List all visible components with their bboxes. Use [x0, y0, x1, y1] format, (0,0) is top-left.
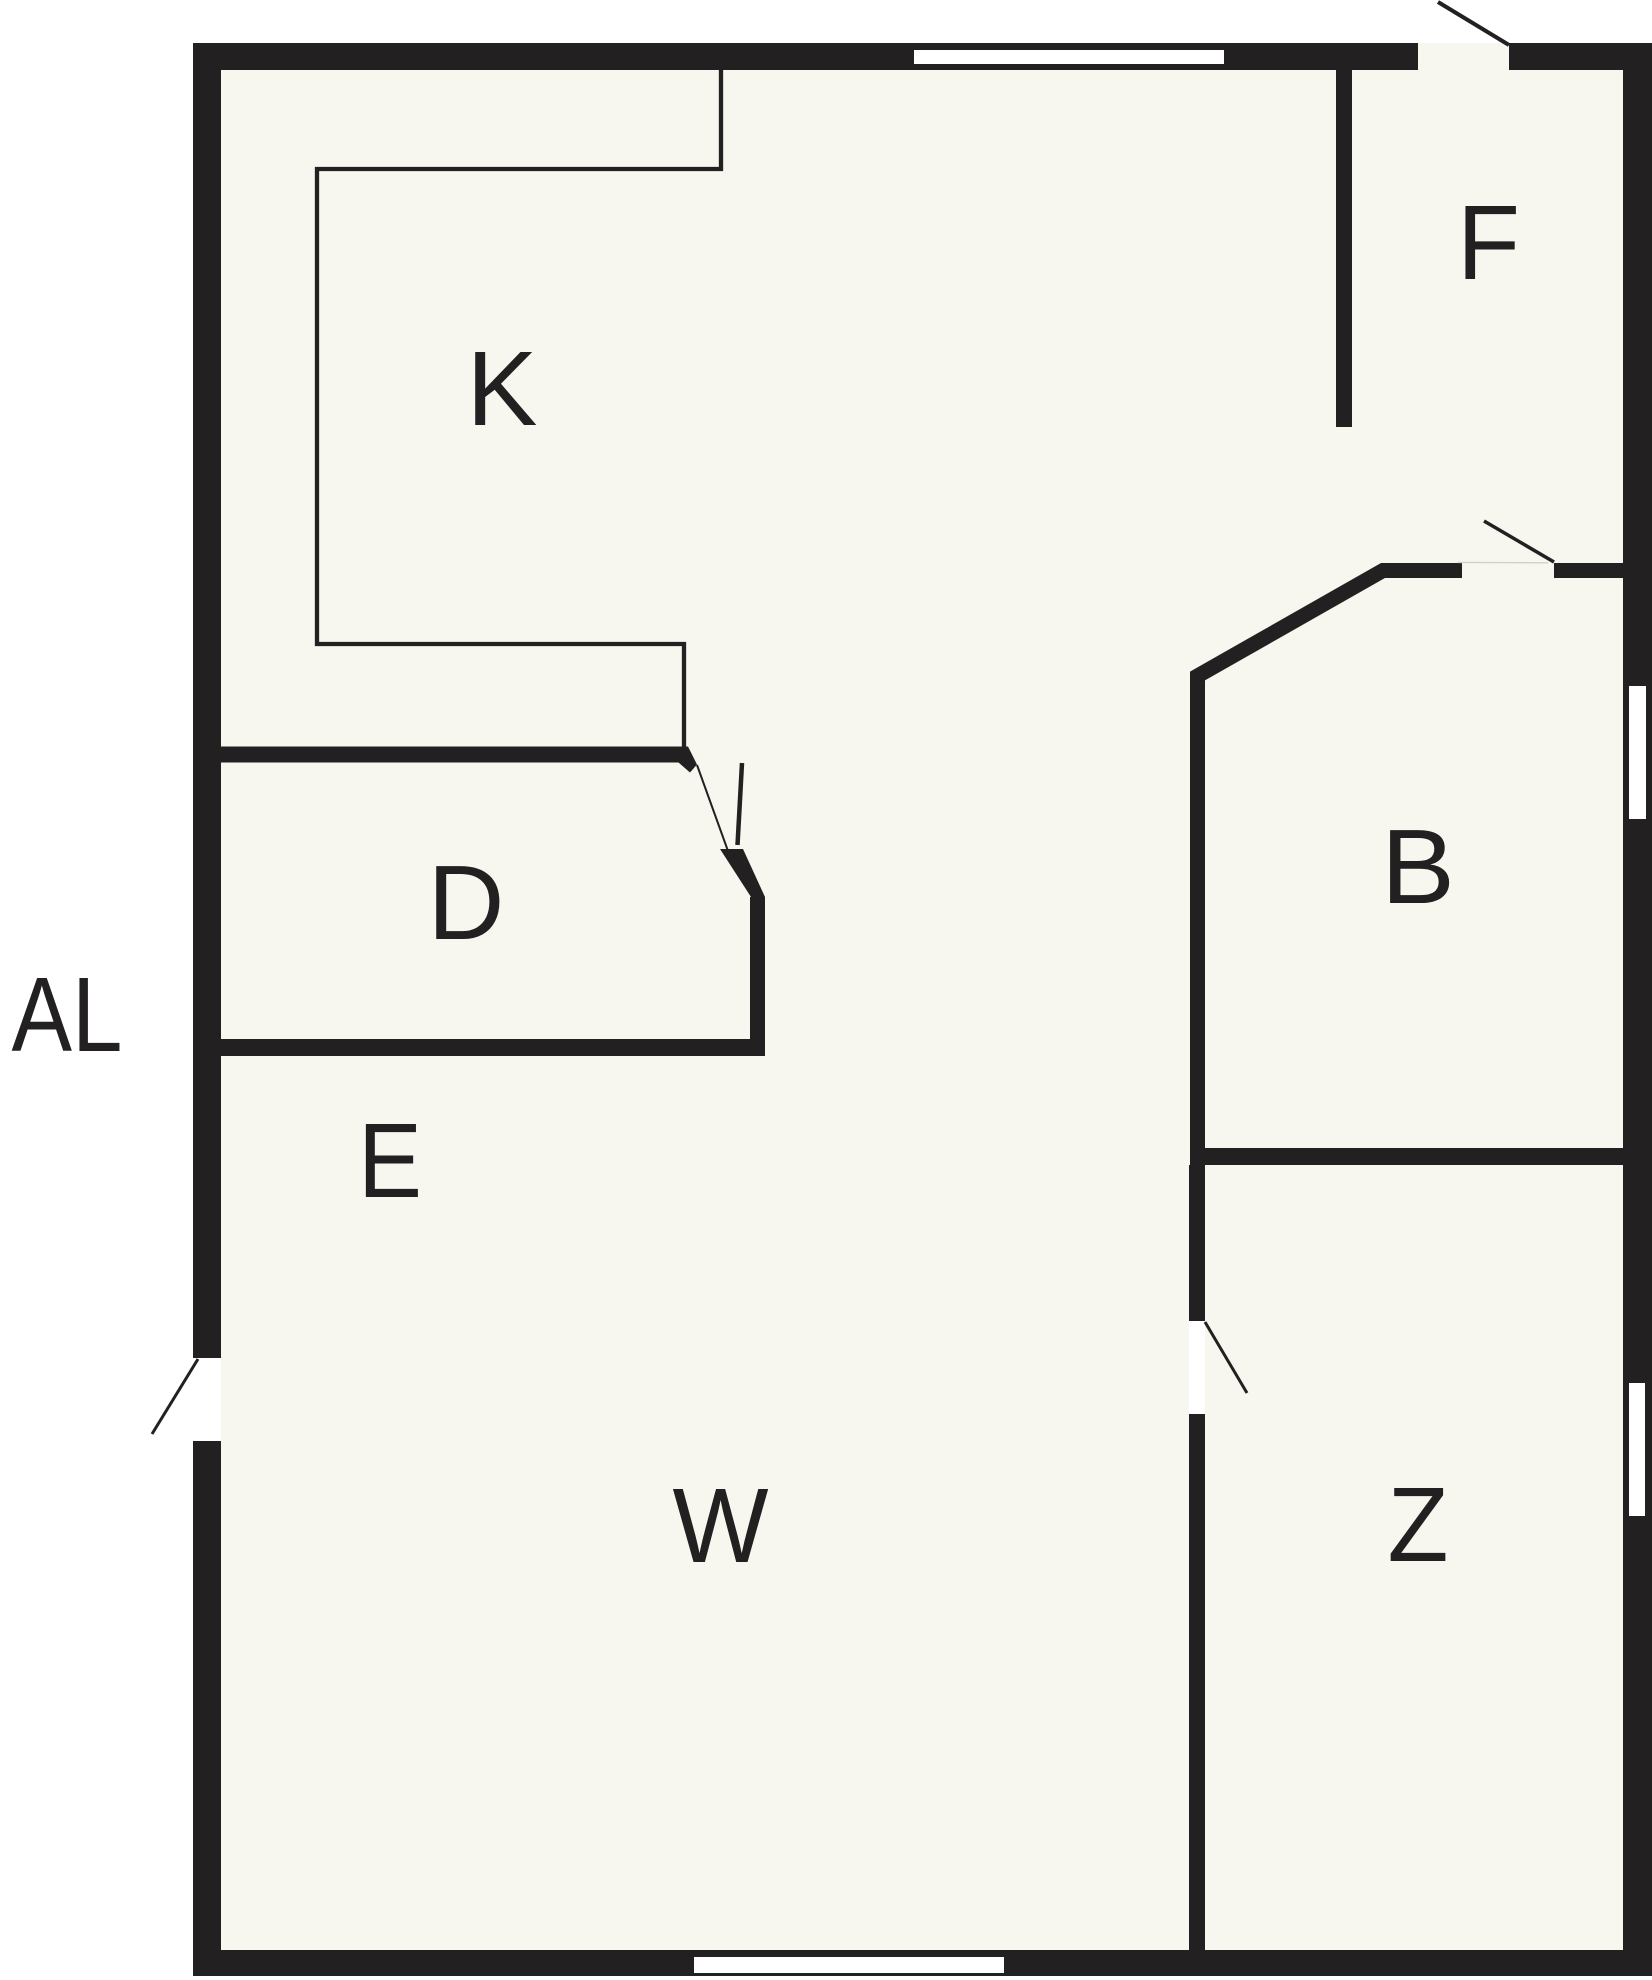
svg-text:K: K [467, 330, 538, 448]
svg-text:E: E [358, 1102, 422, 1220]
svg-text:W: W [673, 1467, 769, 1585]
svg-text:D: D [428, 844, 505, 962]
svg-text:B: B [1381, 808, 1455, 926]
svg-text:AL: AL [12, 956, 123, 1074]
svg-text:F: F [1457, 184, 1520, 302]
svg-text:Z: Z [1388, 1466, 1449, 1584]
